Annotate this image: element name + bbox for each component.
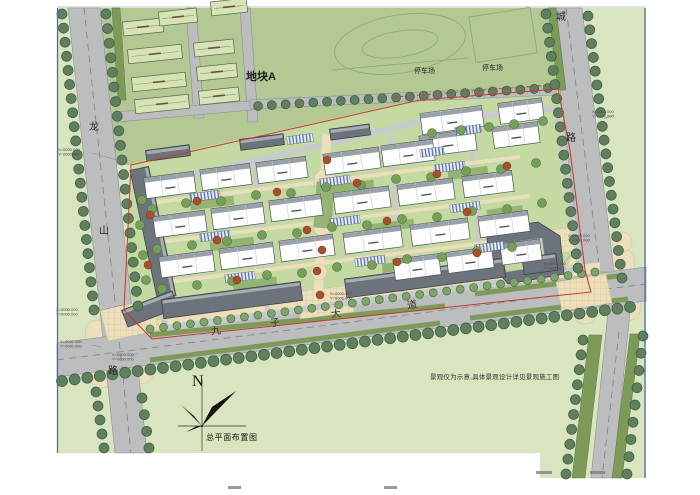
avenue-char-3: 大 bbox=[330, 306, 342, 320]
svg-text:X=0000.000Y=0000.000: X=0000.000Y=0000.000 bbox=[60, 339, 82, 349]
micro-label-specks bbox=[228, 471, 605, 489]
site-plan-drawing: N 总平面布置图 地块A 停车场 停车场 龙 山 路 城 路 九 子 大 道 景… bbox=[0, 0, 700, 495]
plot-a-label: 地块A bbox=[246, 69, 276, 83]
east-road-char-1: 城 bbox=[556, 11, 566, 23]
east-road-char-2: 路 bbox=[566, 131, 576, 144]
parking-label-1: 停车场 bbox=[414, 66, 435, 75]
svg-text:X=0000.000Y=0000.000: X=0000.000Y=0000.000 bbox=[330, 291, 352, 301]
avenue-char-4: 道 bbox=[406, 297, 418, 311]
drawing-title: 总平面布置图 bbox=[206, 432, 258, 442]
west-road-char-1: 龙 bbox=[89, 120, 99, 133]
site-plan-page: N 总平面布置图 地块A 停车场 停车场 龙 山 路 城 路 九 子 大 道 景… bbox=[0, 0, 700, 495]
svg-text:X=0000.000Y=0000.000: X=0000.000Y=0000.000 bbox=[56, 307, 78, 317]
avenue-char-1: 九 bbox=[210, 324, 221, 337]
west-road-char-2: 山 bbox=[99, 225, 109, 237]
svg-text:X=0000.000Y=0000.000: X=0000.000Y=0000.000 bbox=[112, 352, 134, 362]
svg-text:X=0000.000Y=0000.000: X=0000.000Y=0000.000 bbox=[592, 109, 614, 119]
landscape-note: 景观仅为示意,具体景观设计详见景观施工图 bbox=[430, 372, 559, 381]
svg-text:X=0000.000Y=0000.000: X=0000.000Y=0000.000 bbox=[544, 261, 566, 271]
svg-text:X=0000.000Y=0000.000: X=0000.000Y=0000.000 bbox=[58, 147, 80, 157]
north-letter: N bbox=[192, 373, 204, 390]
parking-label-2: 停车场 bbox=[482, 63, 503, 72]
avenue-char-2: 子 bbox=[269, 316, 280, 329]
west-road-char-3: 路 bbox=[108, 364, 118, 377]
svg-text:X=0000.000Y=0000.000: X=0000.000Y=0000.000 bbox=[568, 233, 590, 243]
